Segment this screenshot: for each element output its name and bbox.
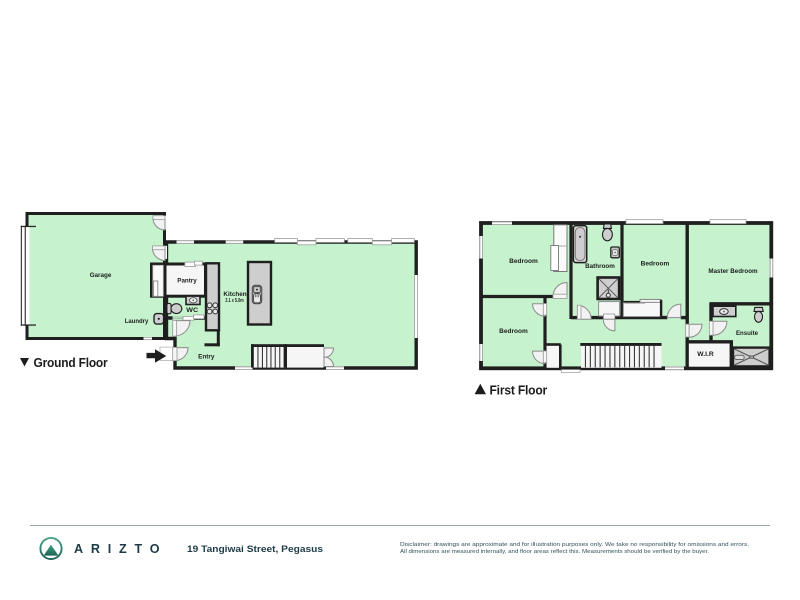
svg-text:Garage: Garage [90,272,112,279]
svg-text:Bedroom: Bedroom [509,258,538,265]
svg-text:3.1 x 5.0m: 3.1 x 5.0m [225,298,244,304]
svg-text:W.I.R: W.I.R [697,351,713,358]
svg-text:First Floor: First Floor [490,383,548,397]
svg-text:Entry: Entry [198,353,215,360]
svg-text:Bathroom: Bathroom [585,263,615,270]
svg-text:All dimensions are measured in: All dimensions are measured internally, … [400,549,709,555]
svg-text:Ensuite: Ensuite [736,330,758,337]
svg-text:Master Bedroom: Master Bedroom [708,268,757,275]
svg-text:Kitchen: Kitchen [223,291,246,298]
svg-text:Laundry: Laundry [125,318,149,325]
svg-text:Ground Floor: Ground Floor [34,356,108,370]
svg-text:19 Tangiwai Street, Pegasus: 19 Tangiwai Street, Pegasus [187,544,323,554]
svg-text:Bedroom: Bedroom [641,261,670,268]
svg-text:WC: WC [186,307,198,314]
svg-text:Pantry: Pantry [177,278,197,285]
svg-text:Disclaimer: drawings are appro: Disclaimer: drawings are approximate and… [400,542,749,548]
svg-text:Bedroom: Bedroom [499,328,528,335]
